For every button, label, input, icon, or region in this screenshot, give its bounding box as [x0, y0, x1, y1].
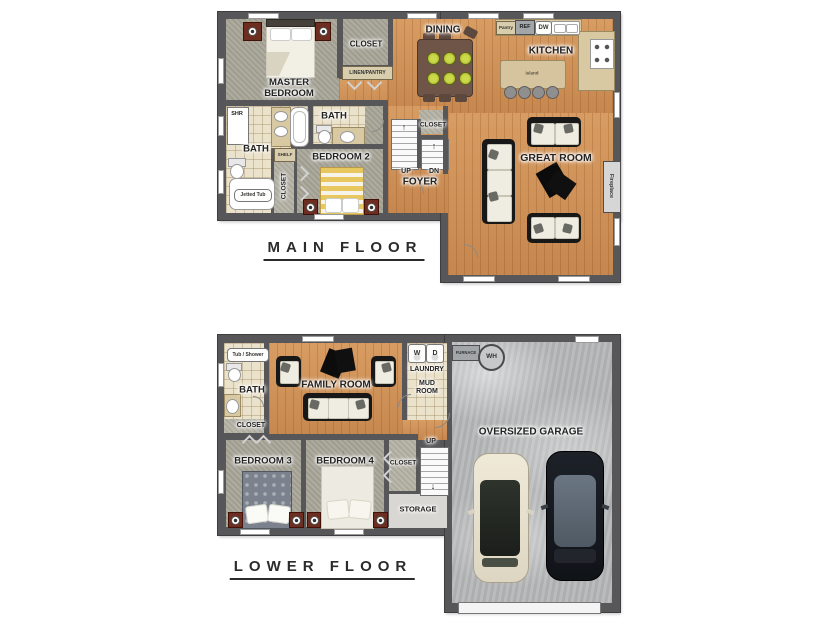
- label-fireplace: Fireplace: [608, 174, 614, 198]
- island-stool: [518, 86, 531, 99]
- label-island: Island: [525, 70, 538, 75]
- toilet-bowl: [228, 368, 241, 382]
- label-dn: DN: [429, 168, 439, 176]
- bed-pillow: [267, 504, 291, 525]
- label-closet-lower: CLOSET: [237, 422, 265, 430]
- lower-floor-title: LOWER FLOOR: [230, 558, 415, 580]
- place-setting: [427, 52, 440, 65]
- nightstand: [303, 199, 318, 215]
- washer-box: W: [408, 344, 426, 363]
- island-stool: [546, 86, 559, 99]
- throw-pillow: [563, 123, 574, 134]
- bed-pillow: [326, 499, 350, 520]
- window: [218, 363, 224, 387]
- jetted-tub-label-box: Jetted Tub: [234, 189, 272, 202]
- room-label-dining: DINING: [426, 24, 461, 36]
- bed-pillow: [270, 28, 291, 41]
- dining-chair: [439, 94, 451, 102]
- bath-sink-icon: [274, 111, 288, 122]
- room-label-kitchen: KITCHEN: [529, 45, 573, 57]
- place-setting: [443, 52, 456, 65]
- room-label-bedroom3: BEDROOM 3: [234, 457, 292, 468]
- dishwasher-box: DW: [535, 21, 552, 35]
- main-floor-title: MAIN FLOOR: [264, 239, 425, 261]
- wall-storage-top: [388, 491, 418, 494]
- car-dark: [546, 451, 604, 581]
- room-label-bedroom2: BEDROOM 2: [312, 153, 370, 164]
- window: [614, 218, 620, 246]
- place-setting: [459, 72, 472, 85]
- coffee-table: [334, 348, 356, 374]
- sofa-cushion: [328, 398, 349, 419]
- bath-sink-icon: [226, 399, 239, 414]
- sink-basin: [566, 24, 578, 33]
- wall-family-mud: [402, 343, 407, 395]
- window: [240, 529, 270, 535]
- bed-pillow: [348, 499, 372, 520]
- label-up-lower: UP: [426, 438, 436, 446]
- island-stool: [532, 86, 545, 99]
- bathtub-icon: [290, 107, 309, 147]
- bedroom4-bed: [321, 466, 374, 529]
- sink-basin: [554, 24, 566, 33]
- stove-icon: [590, 39, 614, 69]
- nightstand: [228, 512, 243, 528]
- floor-plan-canvas: ↑ ↑ Pantry REF DW: [0, 0, 840, 630]
- place-setting: [459, 52, 472, 65]
- window: [248, 13, 279, 19]
- dining-chair: [455, 94, 467, 102]
- stairs-down-arrow-icon: ↓: [431, 481, 436, 491]
- wall-closet-stairs: [416, 443, 419, 491]
- nightstand: [307, 512, 321, 528]
- shelf-box: SHELF: [274, 148, 296, 162]
- tub-shower-box: Tub / Shower: [227, 348, 269, 362]
- stairs-dn-arrow-icon: ↑: [432, 141, 437, 151]
- bed-pillow: [245, 504, 269, 525]
- car-cabin: [480, 480, 520, 556]
- nightstand: [289, 512, 304, 528]
- label-closet-bedroom4: CLOSET: [390, 459, 416, 466]
- water-heater-circle: WH: [478, 344, 505, 371]
- car-cabin: [554, 475, 596, 547]
- toilet-bowl: [318, 130, 331, 144]
- dryer-box: D: [426, 344, 444, 363]
- blanket-fold: [267, 52, 313, 76]
- garage-door: [458, 602, 601, 614]
- car-rear-window: [482, 558, 518, 567]
- bath-sink-icon: [340, 131, 355, 143]
- window: [575, 336, 599, 343]
- label-up: UP: [401, 168, 411, 176]
- label-laundry: LAUNDRY: [410, 366, 444, 374]
- place-setting: [427, 72, 440, 85]
- room-label-great-room: GREAT ROOM: [520, 152, 592, 164]
- nightstand: [364, 199, 379, 215]
- car-light: [473, 453, 529, 583]
- bedroom2-bed: [320, 167, 364, 215]
- bath-sink-icon: [274, 126, 288, 137]
- window: [218, 58, 224, 84]
- window: [523, 13, 554, 19]
- car-rear-deck: [554, 549, 596, 563]
- label-storage: STORAGE: [400, 506, 437, 515]
- bedroom3-bed: [242, 471, 292, 529]
- window: [407, 13, 437, 19]
- room-label-family-room: FAMILY ROOM: [301, 379, 370, 391]
- dining-chair: [423, 94, 435, 102]
- room-label-bath-master: BATH: [243, 145, 269, 156]
- room-label-bath2: BATH: [321, 112, 347, 123]
- window: [218, 116, 224, 136]
- bed-pillow: [325, 198, 342, 213]
- room-label-closet: CLOSET: [350, 39, 382, 48]
- pantry-box: Pantry: [496, 21, 516, 35]
- window: [218, 170, 224, 194]
- nightstand: [373, 512, 388, 528]
- label-closet-vertical: CLOSET: [280, 173, 287, 199]
- island-stool: [504, 86, 517, 99]
- room-label-bedroom4: BEDROOM 4: [316, 457, 374, 468]
- label-shr: SHR: [231, 111, 243, 117]
- dining-table: [417, 39, 473, 97]
- wall-foyer-closet-bottom: [417, 135, 447, 139]
- room-label-bath-lower: BATH: [239, 386, 265, 397]
- place-setting: [443, 72, 456, 85]
- master-bed: [266, 19, 315, 78]
- window: [558, 276, 590, 282]
- bed-pillow: [291, 28, 312, 41]
- window: [614, 92, 620, 118]
- window: [314, 214, 344, 220]
- headboard: [266, 19, 315, 27]
- room-label-foyer: FOYER: [403, 176, 437, 188]
- stairs-up-arrow-icon: ↑: [402, 122, 407, 132]
- toilet-bowl: [230, 164, 244, 179]
- refrigerator-box: REF: [515, 20, 535, 35]
- wall-foyer-greatroom: [443, 106, 448, 174]
- kitchen-sink-icon: [551, 21, 580, 35]
- room-label-garage: OVERSIZED GARAGE: [479, 426, 583, 438]
- label-closet-foyer: CLOSET: [420, 121, 446, 128]
- window: [468, 13, 499, 19]
- window: [334, 529, 364, 535]
- window: [218, 470, 224, 494]
- room-label-master-bedroom: MASTER BEDROOM: [246, 78, 332, 100]
- window: [302, 336, 334, 342]
- nightstand: [315, 22, 331, 41]
- wall-master-bath: [226, 100, 388, 106]
- window: [463, 276, 495, 282]
- nightstand: [243, 22, 262, 41]
- label-mud-room: MUD ROOM: [411, 380, 443, 396]
- bed-pillow: [342, 198, 359, 213]
- tub-basin: [293, 111, 306, 143]
- furnace-box: FURNACE: [452, 345, 480, 361]
